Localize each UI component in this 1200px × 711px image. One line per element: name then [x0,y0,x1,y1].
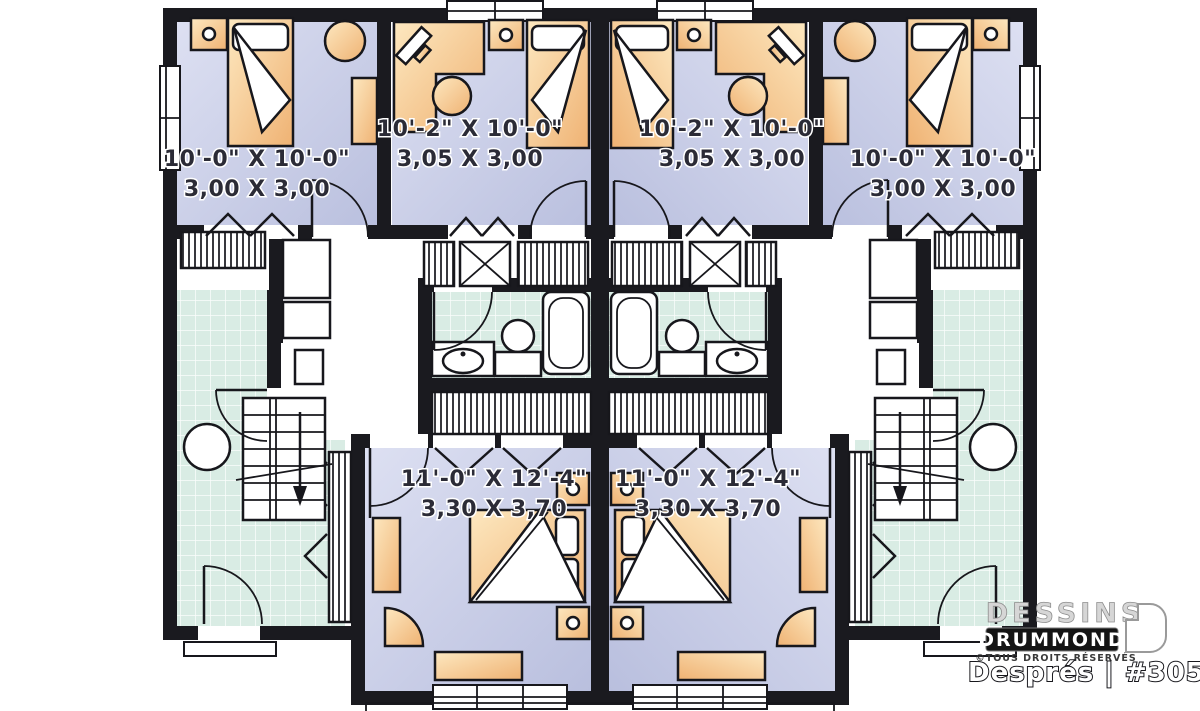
dwelling-unit-mirrored [600,1,1040,711]
window-top-wall [447,1,543,21]
laundry-tub-icon [184,424,230,470]
bedroom-mid-left-metric: 3,05 X 3,00 [397,147,543,172]
brand-name-line2: DRUMMOND [978,629,1125,651]
party-wall [591,8,600,705]
bedroom-master-right-imperial: 11'-0" X 12'-4" [615,467,801,492]
closet-rod-master [432,392,591,434]
stairwell-hatch-small [424,242,454,286]
laundry-partition-wall [267,290,281,388]
floor-plan-page: 10'-0" X 10'-0" 3,00 X 3,00 10'-2" X 10'… [0,0,1200,711]
bedroom-master-left-metric: 3,30 X 3,70 [421,497,567,522]
desk-chair-icon [433,77,471,115]
bedroom-small-right-metric: 3,00 X 3,00 [870,177,1016,202]
staircase [236,398,332,520]
stairwell-hatch-upper [518,242,588,286]
closet-rod-hall [329,452,351,622]
bathtub-icon [543,292,589,374]
bedroom-small-right-imperial: 10'-0" X 10'-0" [850,147,1036,172]
bathroom-bottom-wall [418,378,591,392]
dwelling-unit [160,1,600,711]
double-bed-icon [470,510,585,602]
bedroom-mid-right-metric: 3,05 X 3,00 [659,147,805,172]
round-chair-icon [325,21,365,61]
exterior-wall-bottom-left [163,626,365,640]
brand-logo: DESSINS DRUMMOND ©TOUS DROITS RÉSERVÉS D… [968,598,1200,688]
single-bed-icon [228,18,293,146]
mechanical-chase-xbox [460,242,510,286]
sink-vanity-icon [432,342,494,376]
dresser-icon [373,518,400,592]
dresser-icon [352,78,377,144]
bedroom-small-left-imperial: 10'-0" X 10'-0" [164,147,350,172]
entry-step [184,642,276,656]
bedroom-master-right-metric: 3,30 X 3,70 [635,497,781,522]
brand-name-line1: DESSINS [986,598,1145,629]
window-master-bottom [433,685,567,709]
floor-plan-drawing: 10'-0" X 10'-0" 3,00 X 3,00 10'-2" X 10'… [0,0,1200,711]
master-bedroom-left-wall [351,448,365,705]
low-dresser-icon [435,652,522,680]
bedroom-master-left-imperial: 11'-0" X 12'-4" [401,467,587,492]
bathroom-left-wall [418,292,432,448]
bedroom-mid-left-imperial: 10'-2" X 10'-0" [377,117,563,142]
plan-model-number: Després | #3051 [968,658,1200,688]
closet-rod-bedroom-small [181,232,265,268]
bedroom-mid-right-imperial: 10'-2" X 10'-0" [639,117,825,142]
bedroom-small-left-metric: 3,00 X 3,00 [184,177,330,202]
